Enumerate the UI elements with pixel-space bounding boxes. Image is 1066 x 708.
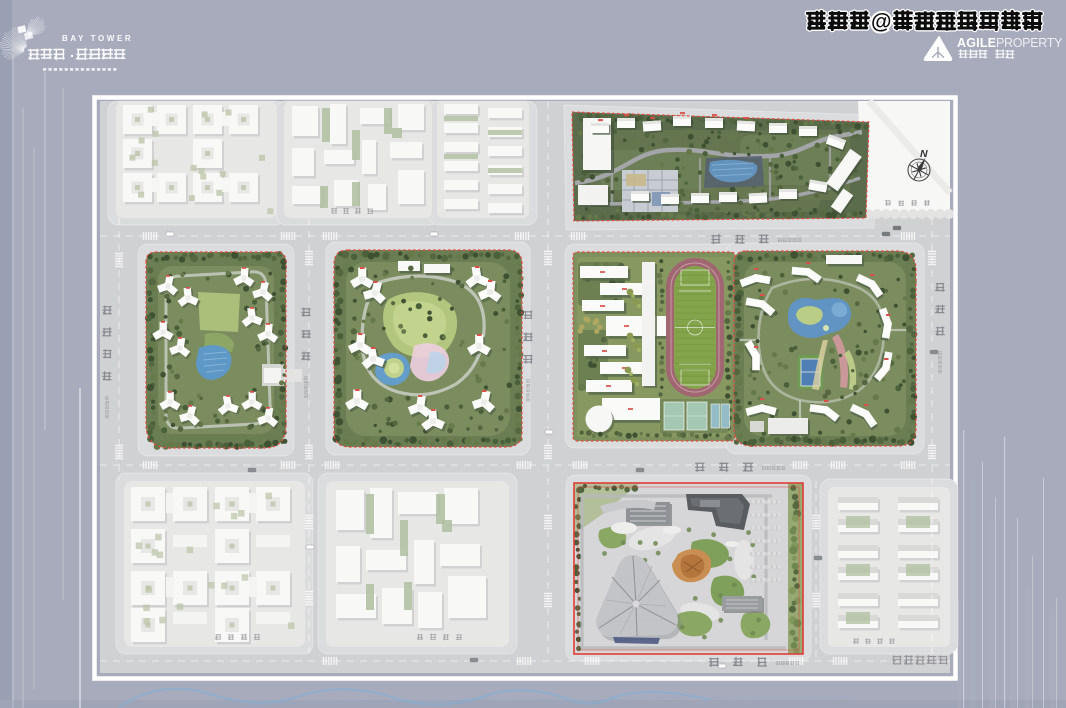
svg-text:AGILE: AGILE (957, 36, 996, 50)
svg-text:@: @ (871, 11, 891, 34)
svg-text:PROPERTY: PROPERTY (996, 36, 1063, 50)
svg-text:N: N (920, 148, 928, 160)
svg-text:BAY TOWER: BAY TOWER (62, 34, 133, 43)
